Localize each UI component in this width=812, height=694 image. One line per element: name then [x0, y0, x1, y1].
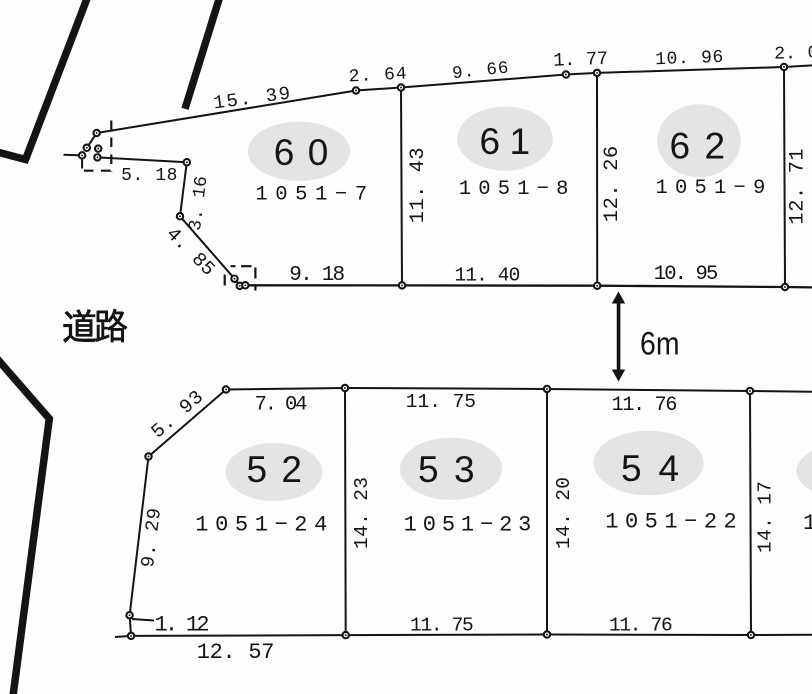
svg-text:11. 40: 11. 40 — [455, 264, 521, 286]
svg-text:9. 18: 9. 18 — [289, 264, 345, 287]
svg-text:11. 43: 11. 43 — [407, 147, 430, 223]
svg-text:0: 0 — [808, 44, 812, 64]
svg-text:7. 04: 7. 04 — [255, 393, 308, 416]
svg-text:12. 26: 12. 26 — [601, 146, 624, 223]
svg-text:11. 75: 11. 75 — [406, 391, 476, 413]
svg-text:11. 76: 11. 76 — [612, 394, 678, 417]
svg-text:10: 10 — [803, 511, 812, 536]
svg-text:6m: 6m — [640, 326, 680, 362]
svg-text:1051−24: 1051−24 — [195, 512, 327, 537]
svg-text:11. 76: 11. 76 — [609, 614, 673, 636]
svg-text:14. 20: 14. 20 — [553, 477, 575, 549]
svg-text:1051−23: 1051−23 — [404, 512, 532, 537]
svg-text:12. 57: 12. 57 — [197, 640, 275, 665]
svg-text:1. 12: 1. 12 — [154, 613, 209, 638]
svg-text:14. 23: 14. 23 — [351, 477, 373, 549]
svg-text:10. 95: 10. 95 — [654, 263, 719, 286]
svg-text:11. 75: 11. 75 — [410, 614, 474, 636]
svg-text:1. 77: 1. 77 — [553, 48, 609, 72]
svg-text:2.: 2. — [774, 45, 796, 65]
svg-text:10. 96: 10. 96 — [655, 48, 724, 70]
svg-text:12. 71: 12. 71 — [787, 148, 810, 225]
svg-text:14. 17: 14. 17 — [754, 481, 776, 553]
svg-text:2. 64: 2. 64 — [348, 65, 407, 88]
svg-text:1051−22: 1051−22 — [605, 509, 737, 534]
svg-text:5. 18: 5. 18 — [121, 166, 177, 186]
